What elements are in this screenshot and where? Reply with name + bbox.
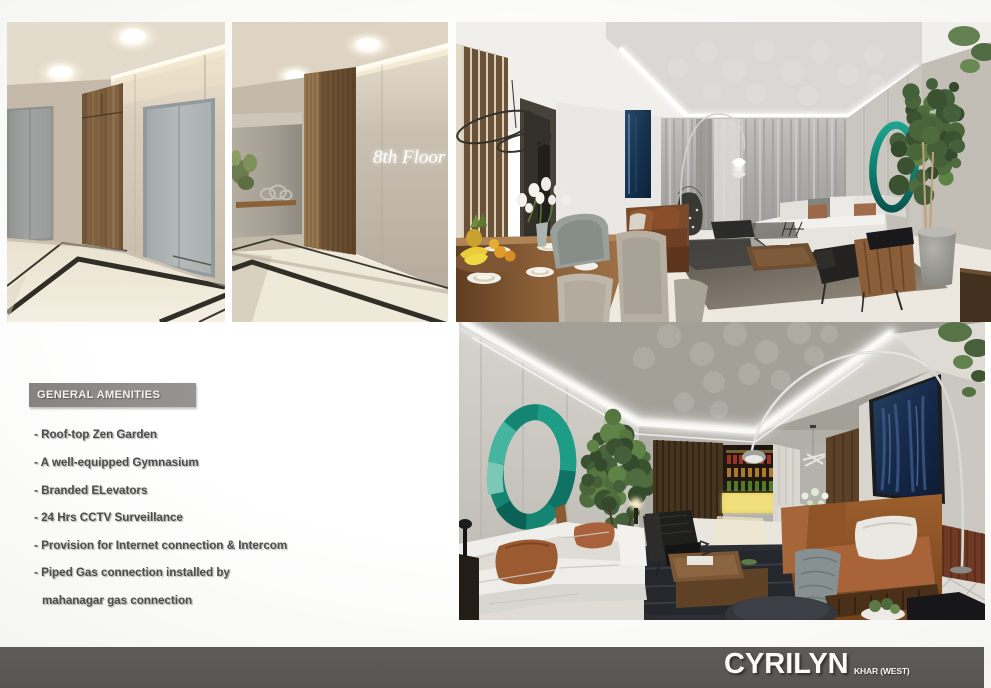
svg-text:8th Floor: 8th Floor bbox=[373, 147, 446, 168]
